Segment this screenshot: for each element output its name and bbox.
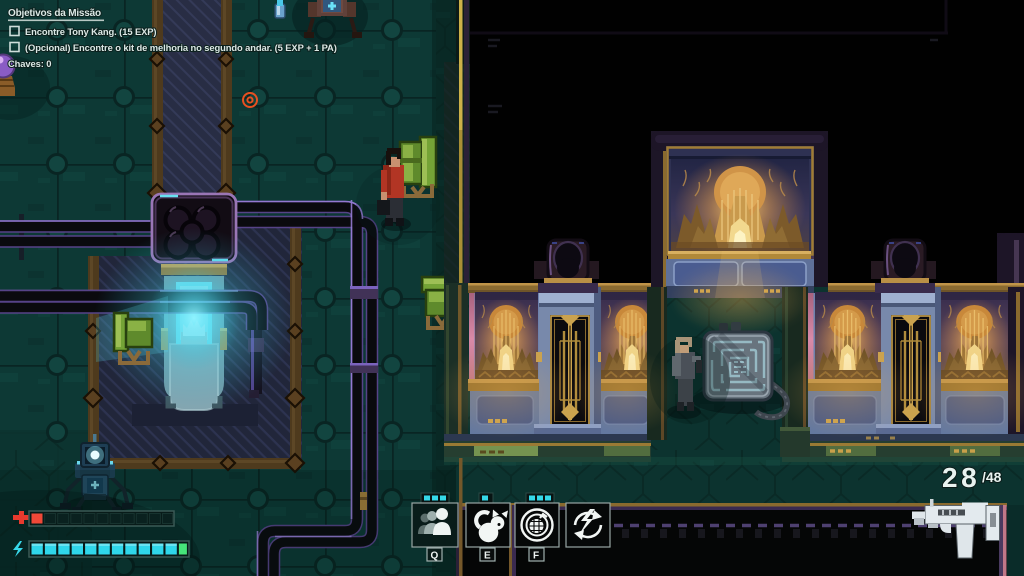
svg-text:E: E bbox=[484, 551, 491, 562]
svg-text:Chaves: 0: Chaves: 0 bbox=[8, 58, 51, 69]
svg-text:Q: Q bbox=[431, 551, 439, 562]
svg-text:F: F bbox=[533, 551, 539, 562]
svg-text:28: 28 bbox=[942, 462, 980, 493]
svg-text:Objetivos da Missão: Objetivos da Missão bbox=[8, 8, 101, 19]
svg-text:(Opcional) Encontre o kit de m: (Opcional) Encontre o kit de melhoria no… bbox=[25, 42, 337, 53]
svg-text:/48: /48 bbox=[982, 469, 1002, 485]
svg-text:Encontre Tony Kang. (15 EXP): Encontre Tony Kang. (15 EXP) bbox=[25, 26, 156, 37]
